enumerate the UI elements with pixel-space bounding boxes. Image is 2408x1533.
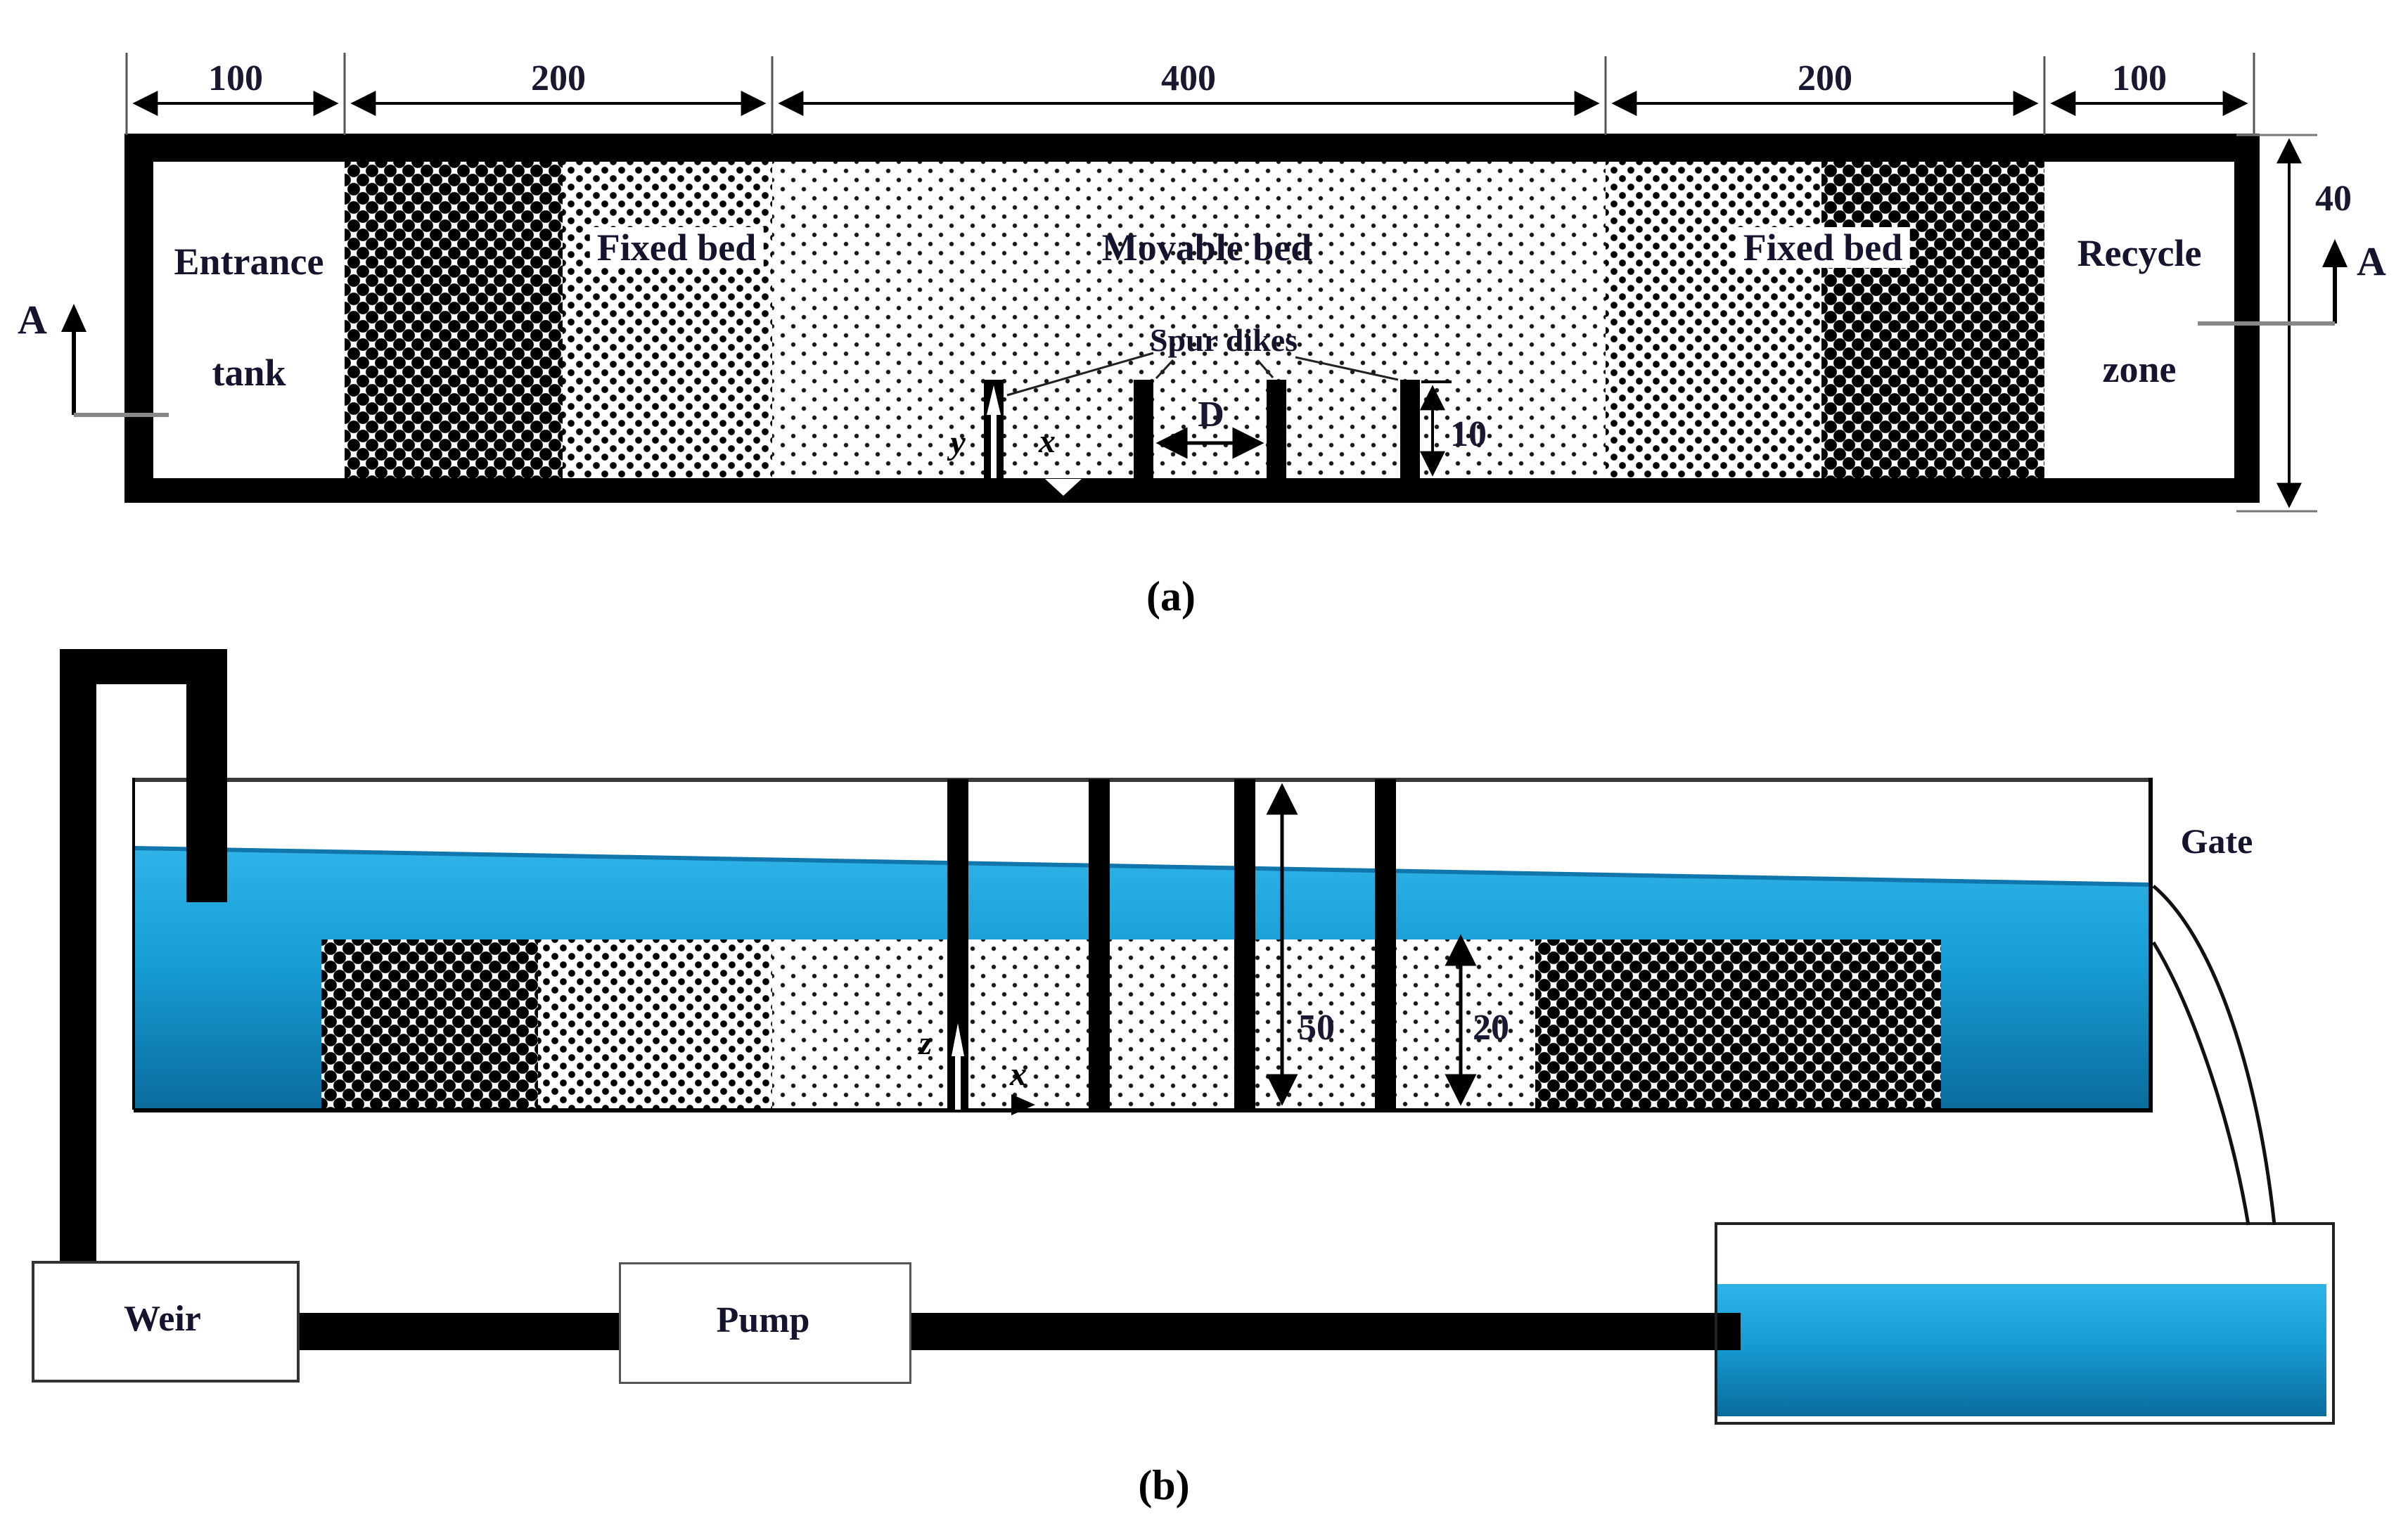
section-label-A-right: A xyxy=(2357,241,2386,282)
dike-length-label-10: 10 xyxy=(1450,416,1487,453)
dim-label-200-left: 200 xyxy=(531,60,586,97)
width-label-40: 40 xyxy=(2315,181,2352,217)
dim-label-400: 400 xyxy=(1161,60,1216,97)
gate-nappe-curves xyxy=(2153,886,2274,1225)
fixed-bed-left-label: Fixed bed xyxy=(590,227,764,268)
axis-label-y: y xyxy=(950,426,965,460)
figure-canvas: 100 200 400 200 100 Entrance tank Fixed … xyxy=(0,0,2408,1533)
dike-spacing-label-D: D xyxy=(1198,397,1224,433)
entrance-tank-label-line1: Entrance xyxy=(174,243,324,281)
movable-bed-label: Movable bed xyxy=(1102,229,1312,267)
recycle-zone-label-line2: zone xyxy=(2103,350,2177,388)
dike-length-dimension xyxy=(1421,382,1452,474)
entrance-tank-label-line2: tank xyxy=(212,354,286,392)
bed-label-20: 20 xyxy=(1473,1010,1509,1046)
section-label-A-left: A xyxy=(18,300,47,340)
gate-label: Gate xyxy=(2181,823,2253,859)
spur-dikes-label: Spur dikes xyxy=(1150,324,1298,357)
pump-label: Pump xyxy=(717,1302,810,1339)
axis-label-z: z xyxy=(919,1027,933,1060)
depth-label-50: 50 xyxy=(1298,1010,1335,1046)
xy-axis-origin xyxy=(987,385,1082,496)
dim-label-200-right: 200 xyxy=(1798,60,1852,97)
section-marker-left xyxy=(61,304,169,415)
axis-label-x-plan: x xyxy=(1039,425,1056,458)
axis-label-x-side: x xyxy=(1010,1058,1027,1091)
fixed-bed-right-label: Fixed bed xyxy=(1736,227,1910,268)
spur-dike-leaders xyxy=(1007,353,1398,395)
section-marker-right xyxy=(2198,239,2348,323)
dim-label-100-right: 100 xyxy=(2112,60,2167,97)
recycle-zone-label-line1: Recycle xyxy=(2077,234,2202,272)
caption-a: (a) xyxy=(1146,575,1196,617)
dim-label-100-left: 100 xyxy=(208,60,263,97)
caption-b: (b) xyxy=(1138,1464,1189,1506)
weir-label: Weir xyxy=(124,1301,201,1338)
